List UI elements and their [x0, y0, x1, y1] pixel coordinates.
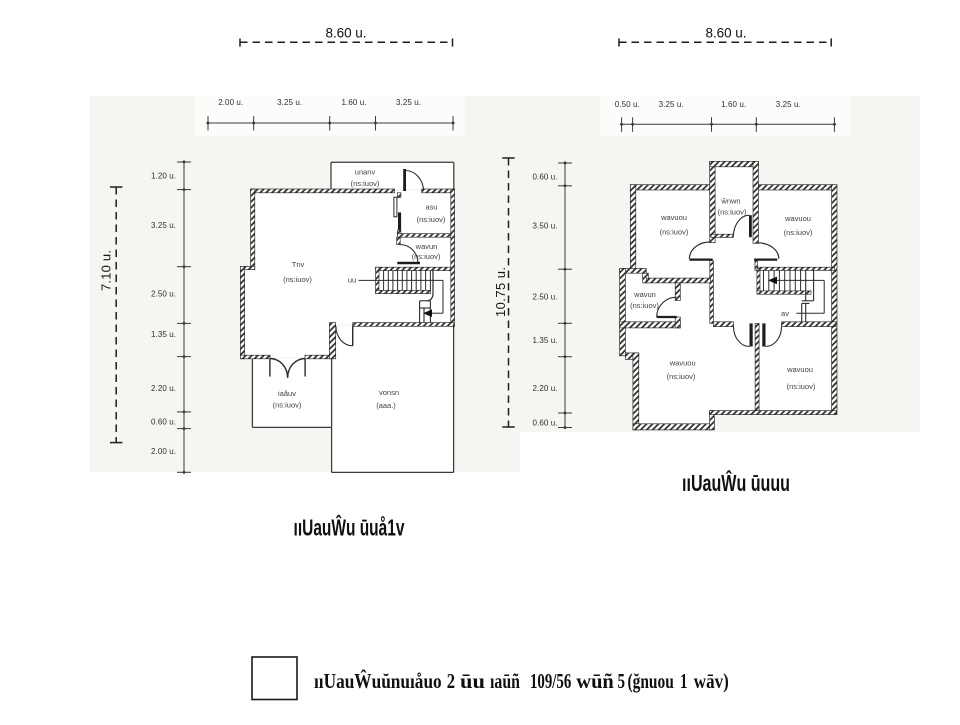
- svg-text:wavuou: wavuou: [660, 213, 687, 222]
- svg-text:1.35 u.: 1.35 u.: [151, 330, 176, 339]
- svg-text:0.60 u.: 0.60 u.: [533, 173, 558, 182]
- svg-text:2.20 u.: 2.20 u.: [533, 384, 558, 393]
- svg-text:asu: asu: [425, 203, 437, 212]
- svg-text:2.50 u.: 2.50 u.: [533, 292, 558, 301]
- svg-text:3.25 u.: 3.25 u.: [151, 221, 176, 230]
- svg-text:(ns:iuov): (ns:iuov): [417, 215, 446, 224]
- svg-text:ııUauŴu ūuuu: ııUauŴu ūuuu: [682, 469, 790, 497]
- svg-text:ıaūñ: ıaūñ: [490, 670, 521, 694]
- svg-text:1.60 u.: 1.60 u.: [721, 100, 746, 109]
- svg-text:5: 5: [618, 670, 625, 693]
- svg-text:3.25 u.: 3.25 u.: [659, 100, 684, 109]
- svg-text:vonsn: vonsn: [379, 388, 399, 397]
- svg-text:2.00 u.: 2.00 u.: [218, 98, 243, 107]
- svg-text:2.20 u.: 2.20 u.: [151, 384, 176, 393]
- svg-text:1: 1: [680, 670, 687, 693]
- svg-text:(aaa.): (aaa.): [376, 401, 396, 410]
- svg-text:(ns:iuov): (ns:iuov): [787, 382, 816, 391]
- svg-text:3.25 u.: 3.25 u.: [776, 100, 801, 109]
- svg-text:unanv: unanv: [355, 168, 376, 177]
- svg-text:iaåuv: iaåuv: [278, 389, 296, 398]
- svg-text:1.60 u.: 1.60 u.: [342, 98, 367, 107]
- svg-text:(ns:iuov): (ns:iuov): [660, 228, 689, 237]
- svg-text:3.50 u.: 3.50 u.: [533, 221, 558, 230]
- svg-text:(ns:iuov): (ns:iuov): [273, 401, 302, 410]
- svg-text:(ns:iuov): (ns:iuov): [351, 179, 380, 188]
- svg-text:ııUauŴuŭnuıåuo: ııUauŴuŭnuıåuo: [314, 669, 442, 693]
- svg-text:ııUauŴu ūuå1v: ııUauŴu ūuå1v: [294, 513, 405, 541]
- svg-text:Tnv: Tnv: [292, 260, 305, 269]
- svg-text:(ns:iuov): (ns:iuov): [630, 301, 659, 310]
- svg-text:1.35 u.: 1.35 u.: [533, 336, 558, 345]
- svg-text:(ğnuou: (ğnuou: [628, 670, 674, 694]
- svg-text:(ns:iuov): (ns:iuov): [283, 275, 312, 284]
- svg-text:wavun: wavun: [415, 242, 438, 251]
- svg-text:wāv): wāv): [694, 670, 729, 693]
- svg-text:ŵnwn: ŵnwn: [720, 197, 740, 206]
- svg-text:av: av: [781, 309, 789, 318]
- svg-text:2.00 u.: 2.00 u.: [151, 447, 176, 456]
- svg-text:0.60 u.: 0.60 u.: [151, 417, 176, 426]
- svg-text:1.20 u.: 1.20 u.: [151, 172, 176, 181]
- svg-text:3.25 u.: 3.25 u.: [277, 98, 302, 107]
- svg-text:3.25 u.: 3.25 u.: [396, 98, 421, 107]
- svg-text:(ns:iuov): (ns:iuov): [412, 252, 441, 261]
- svg-text:109/56: 109/56: [530, 670, 571, 693]
- svg-text:7.10 u.: 7.10 u.: [99, 250, 114, 291]
- svg-text:wūñ: wūñ: [576, 671, 614, 693]
- svg-text:uu: uu: [348, 275, 356, 284]
- svg-text:wavuou: wavuou: [784, 214, 811, 223]
- svg-text:(ns:iuov): (ns:iuov): [784, 228, 813, 237]
- svg-text:(ns:iuov): (ns:iuov): [718, 207, 747, 216]
- svg-text:wavuou: wavuou: [786, 365, 813, 374]
- svg-text:(ns:iuov): (ns:iuov): [667, 372, 696, 381]
- svg-text:10.75 u.: 10.75 u.: [493, 267, 508, 317]
- svg-text:2: 2: [447, 670, 455, 693]
- svg-text:8.60 u.: 8.60 u.: [326, 26, 367, 41]
- svg-text:0.60 u.: 0.60 u.: [533, 419, 558, 428]
- svg-text:ūu: ūu: [460, 670, 485, 693]
- svg-text:0.50 u.: 0.50 u.: [615, 100, 640, 109]
- svg-text:wavun: wavun: [633, 290, 656, 299]
- svg-text:wavuou: wavuou: [669, 359, 696, 368]
- svg-text:2.50 u.: 2.50 u.: [151, 290, 176, 299]
- svg-text:8.60 u.: 8.60 u.: [706, 26, 747, 41]
